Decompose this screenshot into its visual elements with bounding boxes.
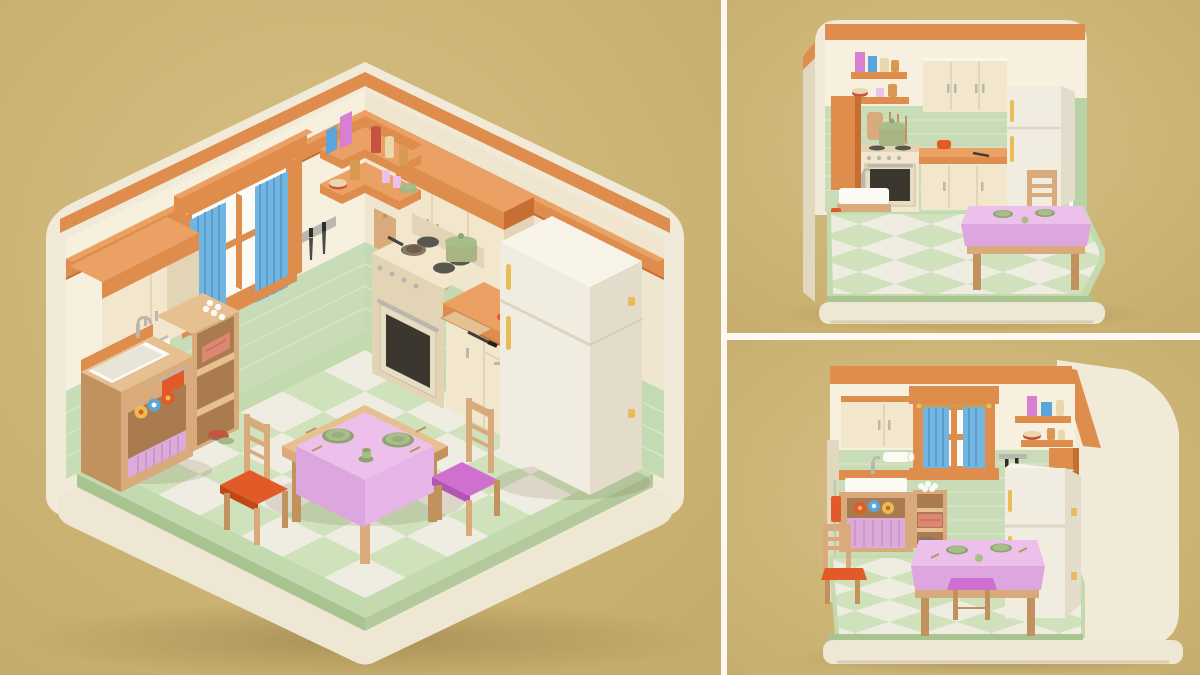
panel-divider-horizontal xyxy=(727,333,1200,340)
artwork-canvas xyxy=(0,0,1200,675)
window xyxy=(909,386,999,480)
window-header xyxy=(909,386,999,404)
shelf-unit xyxy=(913,481,947,548)
counter xyxy=(919,140,1007,210)
panel-front-elevation-view xyxy=(727,0,1200,333)
pink-crate xyxy=(918,514,942,527)
window-sill xyxy=(909,468,999,480)
wall-trim xyxy=(830,366,1072,384)
base-platform xyxy=(823,640,1183,664)
sink-basin xyxy=(845,478,907,492)
orange-pantry xyxy=(831,96,861,190)
under-sink-curtain xyxy=(847,518,905,548)
wall-trim xyxy=(825,24,1085,40)
fridge-handle xyxy=(506,316,511,350)
panel-window-wall-view xyxy=(727,340,1200,675)
upper-cabinet xyxy=(923,58,1007,112)
red-towel xyxy=(831,496,841,522)
fridge xyxy=(500,216,642,495)
paper-towel-roll xyxy=(883,452,914,462)
freezer-handle xyxy=(506,264,511,290)
orange-bowl xyxy=(937,140,951,149)
panel-main-isometric-view xyxy=(0,0,721,675)
rolled-towels xyxy=(854,500,894,514)
